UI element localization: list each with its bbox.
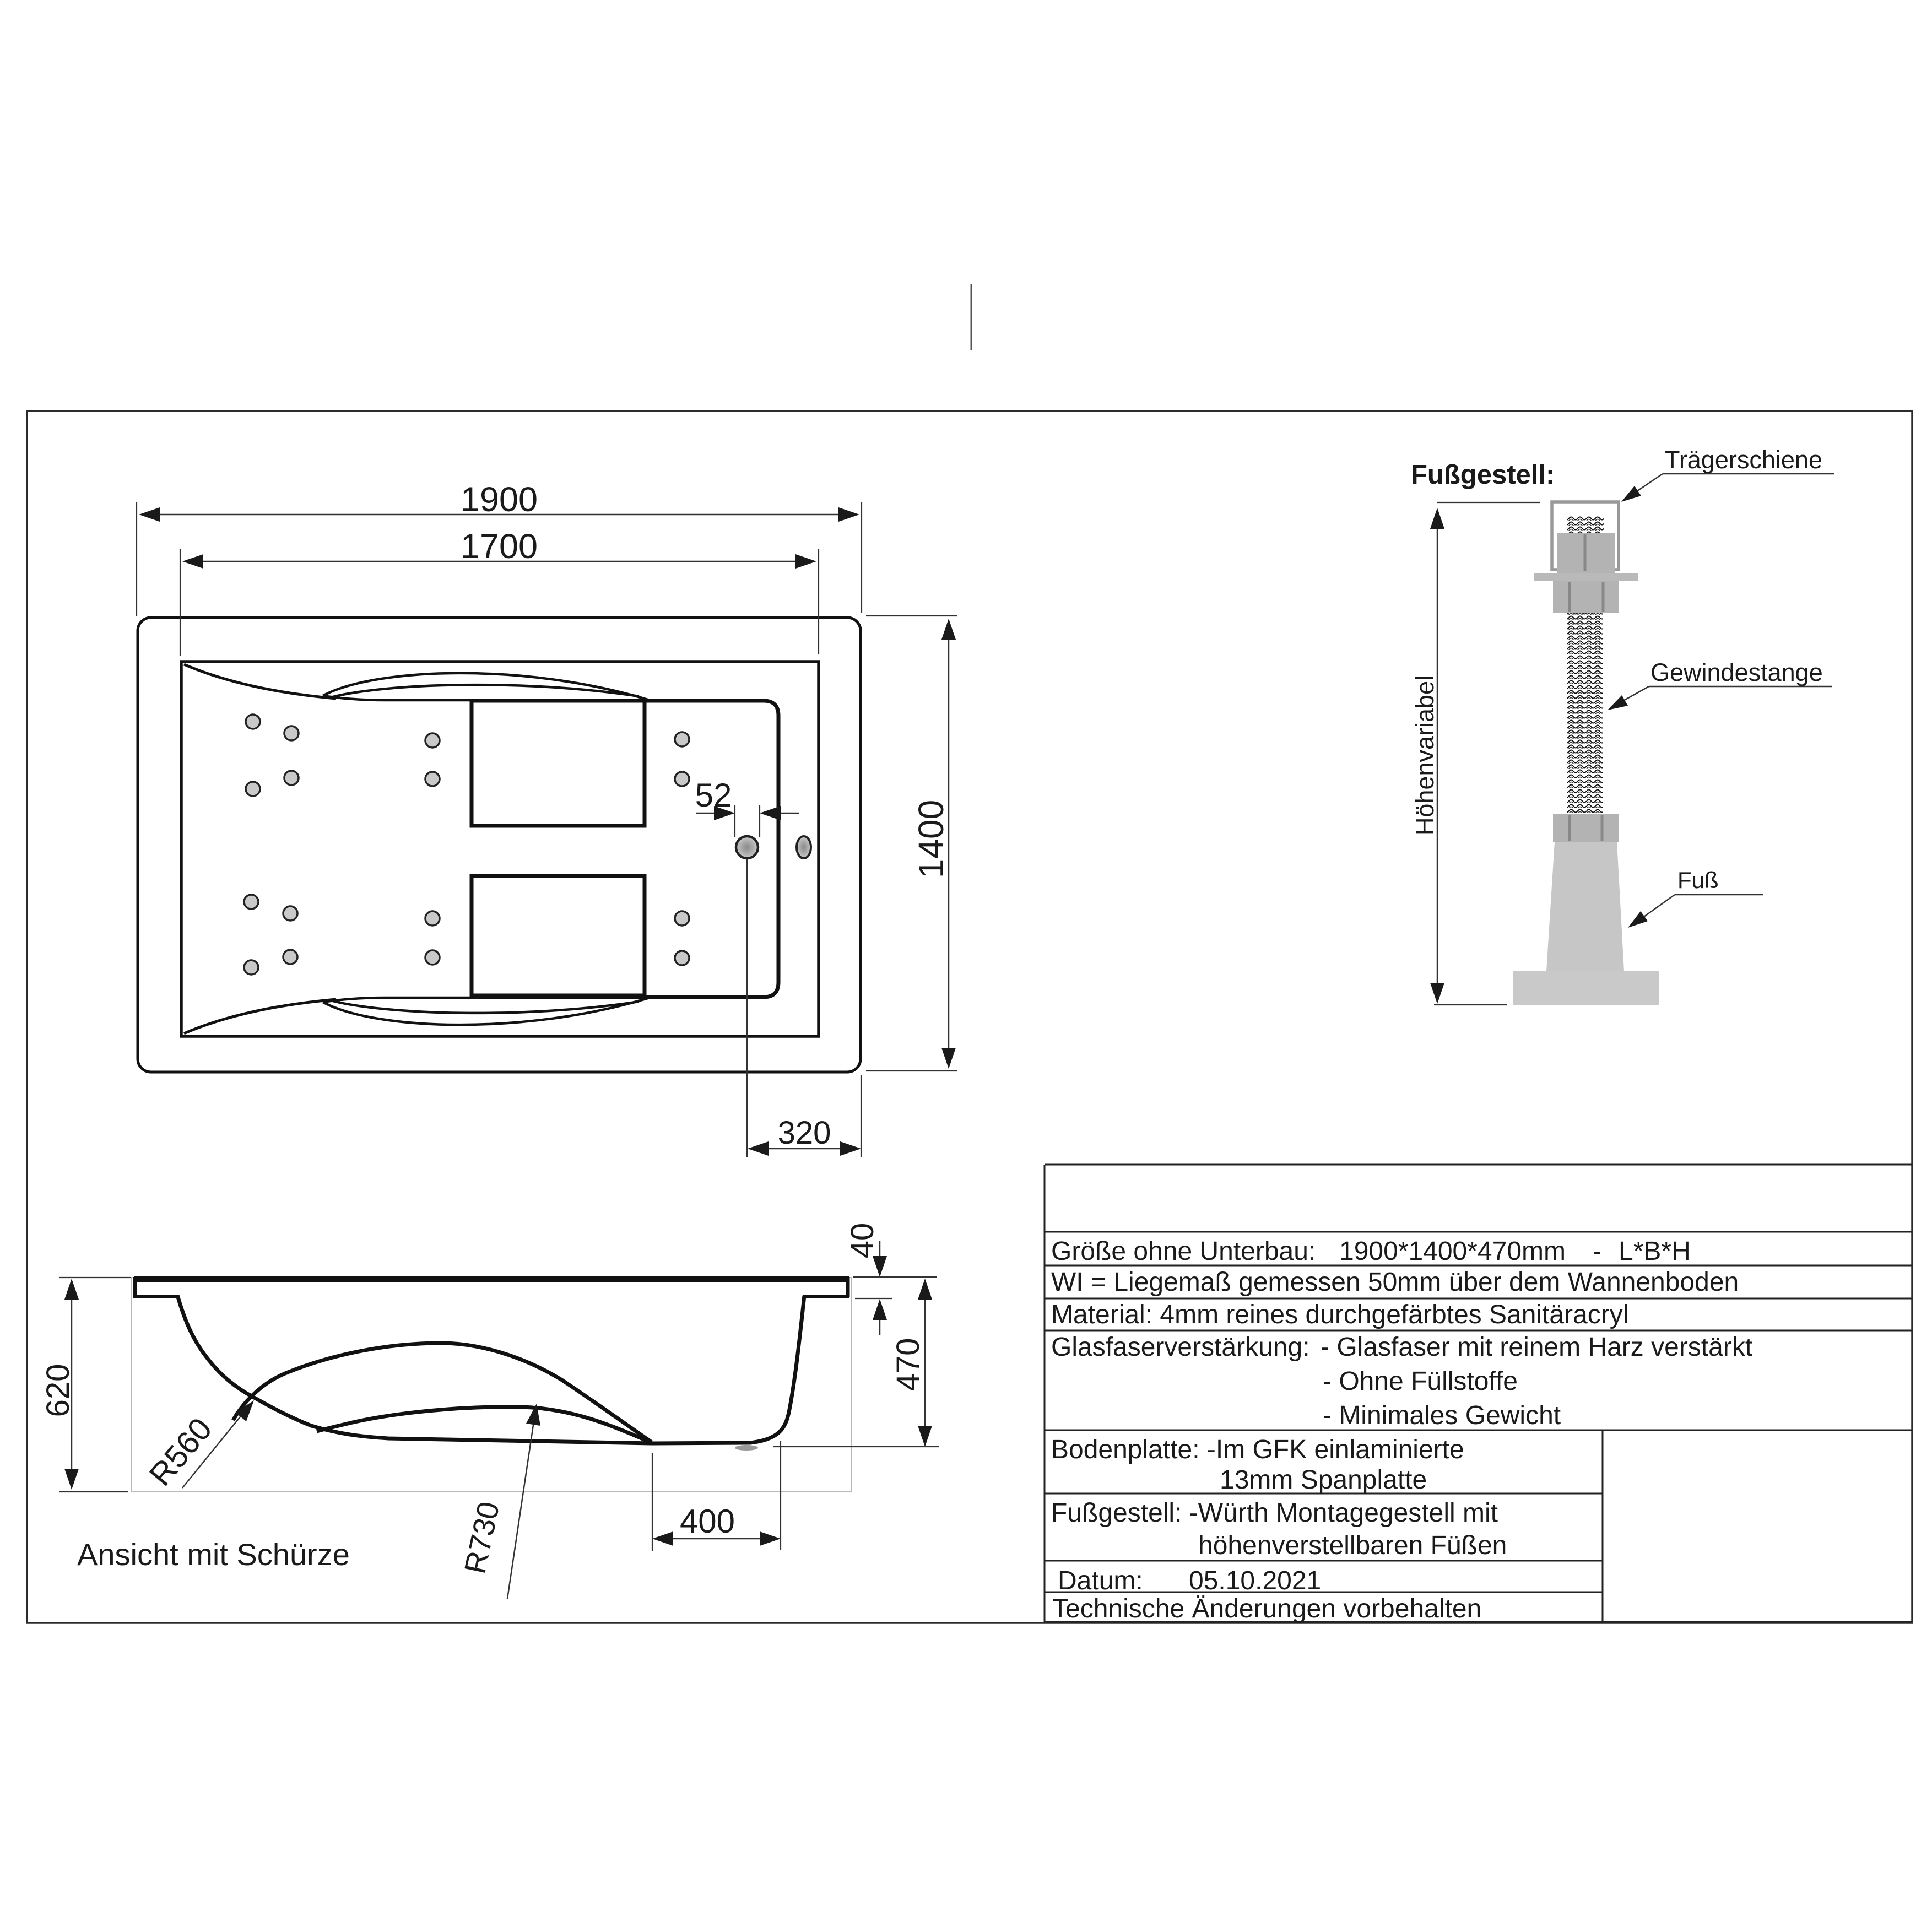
svg-text:1700: 1700 (461, 527, 538, 566)
svg-text:- Ohne Füllstoffe: - Ohne Füllstoffe (1323, 1367, 1518, 1396)
svg-text:Größe ohne Unterbau:: Größe ohne Unterbau: (1051, 1237, 1316, 1266)
svg-text:400: 400 (680, 1503, 735, 1540)
svg-text:- Minimales Gewicht: - Minimales Gewicht (1323, 1401, 1561, 1430)
svg-text:Fußgestell: -Würth Montagegest: Fußgestell: -Würth Montagegestell mit (1051, 1498, 1498, 1528)
svg-text:-: - (1593, 1237, 1601, 1266)
svg-text:Gewindestange: Gewindestange (1650, 658, 1823, 686)
svg-text:Fuß: Fuß (1677, 867, 1719, 893)
svg-text:Material: 4mm reines durchgefä: Material: 4mm reines durchgefärbtes Sani… (1051, 1300, 1628, 1329)
svg-text:13mm Spanplatte: 13mm Spanplatte (1220, 1465, 1427, 1495)
svg-text:1400: 1400 (911, 800, 951, 878)
svg-text:Glasfaserverstärkung:: Glasfaserverstärkung: (1051, 1333, 1310, 1362)
svg-text:320: 320 (778, 1115, 831, 1151)
svg-text:höhenverstellbaren Füßen: höhenverstellbaren Füßen (1198, 1531, 1507, 1560)
svg-text:Bodenplatte: -Im GFK einlamini: Bodenplatte: -Im GFK einlaminierte (1051, 1435, 1464, 1464)
svg-text:Ansicht mit Schürze: Ansicht mit Schürze (77, 1537, 350, 1572)
svg-text:1900*1400*470mm: 1900*1400*470mm (1339, 1237, 1566, 1266)
svg-text:05.10.2021: 05.10.2021 (1189, 1566, 1321, 1595)
svg-text:Technische Änderungen vorbehal: Technische Änderungen vorbehalten (1052, 1594, 1481, 1623)
svg-text:- Glasfaser mit reinem Harz ve: - Glasfaser mit reinem Harz verstärkt (1321, 1333, 1752, 1362)
svg-text:Datum:: Datum: (1058, 1566, 1143, 1595)
svg-text:40: 40 (845, 1223, 880, 1259)
svg-text:Trägerschiene: Trägerschiene (1665, 446, 1822, 474)
svg-text:52: 52 (695, 777, 732, 814)
svg-text:WI = Liegemaß gemessen 50mm üb: WI = Liegemaß gemessen 50mm über dem Wan… (1051, 1268, 1739, 1297)
svg-text:1900: 1900 (461, 480, 538, 519)
svg-text:470: 470 (890, 1338, 926, 1392)
svg-text:Höhenvariabel: Höhenvariabel (1411, 675, 1439, 835)
svg-text:L*B*H: L*B*H (1619, 1237, 1691, 1266)
svg-text:620: 620 (40, 1364, 76, 1417)
svg-text:Fußgestell:: Fußgestell: (1411, 460, 1555, 490)
